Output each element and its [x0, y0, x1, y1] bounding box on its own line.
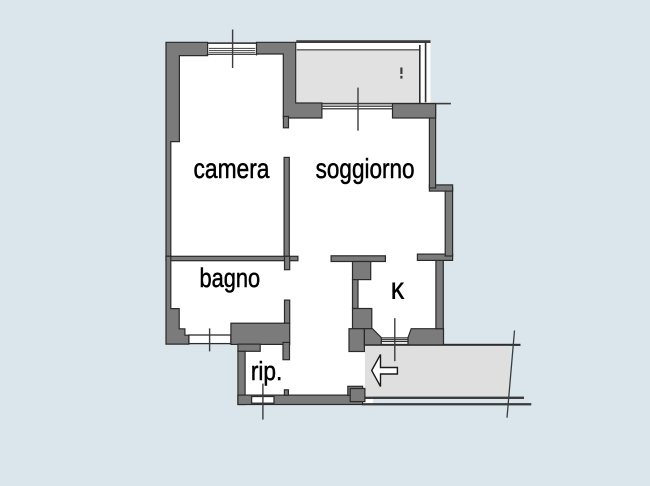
svg-text:bagno: bagno [199, 264, 260, 293]
svg-text:soggiorno: soggiorno [316, 154, 415, 185]
svg-text:camera: camera [194, 154, 271, 185]
svg-text:rip.: rip. [251, 358, 282, 387]
svg-text:K: K [391, 277, 405, 305]
